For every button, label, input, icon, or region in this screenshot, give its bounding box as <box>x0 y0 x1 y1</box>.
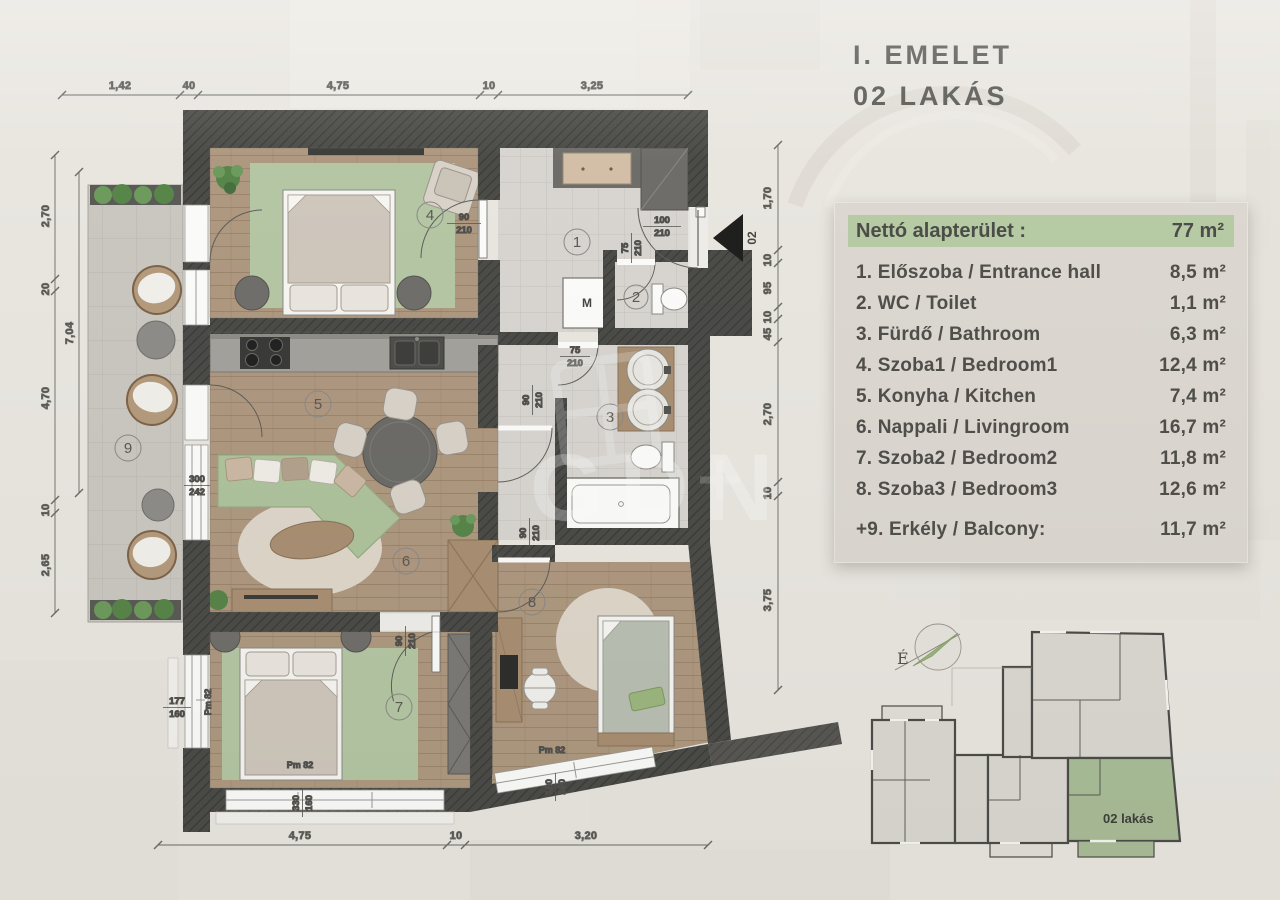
svg-text:3,20: 3,20 <box>575 830 598 842</box>
svg-text:2,65: 2,65 <box>40 554 52 577</box>
room-area: 11,7 m² <box>1142 519 1226 541</box>
door-bedroom1 <box>479 200 487 258</box>
minimap-unit <box>1032 632 1172 758</box>
dining-chair <box>434 420 469 457</box>
svg-text:10: 10 <box>762 311 774 324</box>
room-label: 8. Szoba3 / Bedroom3 <box>856 479 1057 501</box>
wall-top <box>183 110 708 148</box>
svg-text:90: 90 <box>521 395 532 406</box>
svg-text:2: 2 <box>632 289 640 306</box>
wall-bedroom2-bedroom3 <box>470 612 492 788</box>
page-title: I. EMELET 02 LAKÁS <box>853 42 1012 124</box>
svg-text:300: 300 <box>189 474 205 485</box>
minimap-core <box>1003 667 1032 757</box>
svg-text:330: 330 <box>291 795 302 811</box>
svg-text:10: 10 <box>450 830 463 842</box>
legend-row: 4. Szoba1 / Bedroom1 12,4 m² <box>848 350 1234 381</box>
balcony-table <box>137 321 175 359</box>
svg-text:6: 6 <box>402 553 410 570</box>
living-wardrobe <box>448 540 498 612</box>
svg-text:4,75: 4,75 <box>289 830 312 842</box>
window-tag: Pm 82 <box>539 745 566 755</box>
legend-header-value: 77 m² <box>1172 220 1224 243</box>
area-legend: Nettó alapterület : 77 m² 1. Előszoba / … <box>834 202 1248 563</box>
door-bedroom2-opening <box>380 614 438 630</box>
kitchen-sink-symbol <box>390 337 444 369</box>
minimap-unit <box>955 755 988 843</box>
title-unit: 02 LAKÁS <box>853 83 1012 110</box>
wall-wc <box>603 262 615 332</box>
room-label: 1. Előszoba / Entrance hall <box>856 262 1101 284</box>
balcony-table <box>142 489 174 521</box>
dim-left: 2,70 20 4,70 10 2,65 <box>40 151 59 617</box>
legend-row: 3. Fürdő / Bathroom 6,3 m² <box>848 319 1234 350</box>
svg-text:7,04: 7,04 <box>64 321 76 344</box>
window-tag: Pm 82 <box>287 760 314 770</box>
svg-text:160: 160 <box>557 779 568 795</box>
room-area: 12,6 m² <box>1142 479 1226 501</box>
room-label: 3. Fürdő / Bathroom <box>856 324 1040 346</box>
svg-text:210: 210 <box>456 225 472 236</box>
minimap: 02 lakás <box>872 632 1180 857</box>
svg-text:95: 95 <box>762 282 774 295</box>
bedroom1-furniture <box>213 148 482 315</box>
room-area: 6,3 m² <box>1142 324 1226 346</box>
kitchen-furniture <box>210 332 498 372</box>
legend-row: 2. WC / Toilet 1,1 m² <box>848 288 1234 319</box>
room-area: 7,4 m² <box>1142 386 1226 408</box>
svg-text:75: 75 <box>570 345 581 356</box>
shoe-bench <box>563 153 631 184</box>
svg-text:90: 90 <box>459 212 470 223</box>
svg-text:180: 180 <box>544 779 555 795</box>
svg-text:8: 8 <box>528 594 536 611</box>
svg-text:75: 75 <box>620 242 631 253</box>
svg-text:10: 10 <box>40 504 52 517</box>
north-arrow: É <box>895 624 961 670</box>
room-label: 6. Nappali / Livingroom <box>856 417 1070 439</box>
dining-table <box>363 415 437 489</box>
svg-text:4,70: 4,70 <box>40 387 52 410</box>
minimap-unit <box>872 720 955 843</box>
wall-bedroom1-kitchen <box>210 318 500 334</box>
svg-text:1,42: 1,42 <box>109 80 132 92</box>
room-label: +9. Erkély / Balcony: <box>856 519 1046 541</box>
hall-wardrobe <box>641 148 688 210</box>
svg-text:5: 5 <box>314 396 322 413</box>
svg-text:4: 4 <box>426 207 434 224</box>
svg-text:177: 177 <box>169 696 185 707</box>
laptop-symbol <box>500 655 518 689</box>
room-area: 8,5 m² <box>1142 262 1226 284</box>
svg-text:210: 210 <box>633 240 644 256</box>
svg-text:1,70: 1,70 <box>762 187 774 210</box>
legend-header: Nettó alapterület : 77 m² <box>848 215 1234 247</box>
svg-text:4,75: 4,75 <box>327 80 350 92</box>
svg-text:160: 160 <box>169 709 185 720</box>
svg-text:2,70: 2,70 <box>762 403 774 426</box>
dining-chair <box>382 386 419 421</box>
svg-text:90: 90 <box>518 528 529 539</box>
room-area: 16,7 m² <box>1142 417 1226 439</box>
washer-label: M <box>582 296 592 310</box>
room-label: 5. Konyha / Kitchen <box>856 386 1036 408</box>
minimap-bump-highlighted <box>1078 841 1154 857</box>
room-area: 12,4 m² <box>1142 355 1226 377</box>
minimap-unit-label: 02 lakás <box>1103 811 1154 826</box>
balcony-door-kitchen <box>185 385 208 440</box>
svg-text:3,25: 3,25 <box>581 80 604 92</box>
svg-text:90: 90 <box>394 636 405 647</box>
svg-text:10: 10 <box>483 80 496 92</box>
window-tag: Pm 82 <box>203 689 213 716</box>
svg-text:9: 9 <box>124 440 132 457</box>
legend-row: 8. Szoba3 / Bedroom3 12,6 m² <box>848 474 1234 505</box>
svg-text:1: 1 <box>573 234 581 251</box>
svg-text:210: 210 <box>654 228 670 239</box>
room-label: 4. Szoba1 / Bedroom1 <box>856 355 1057 377</box>
svg-text:242: 242 <box>189 487 205 498</box>
watermark-text: GDN <box>530 435 789 541</box>
room-area: 11,8 m² <box>1142 448 1226 470</box>
legend-row-balcony: +9. Erkély / Balcony: 11,7 m² <box>848 514 1234 545</box>
desk <box>496 618 522 722</box>
wall-living-bedroom2 <box>183 612 380 632</box>
svg-text:7: 7 <box>395 699 403 716</box>
room-area: 1,1 m² <box>1142 293 1226 315</box>
dim-right: 1,70 10 95 10 45 2,70 10 3,75 <box>762 141 782 694</box>
wall-corridor-left <box>478 345 498 428</box>
nightstand <box>397 276 431 310</box>
nightstand <box>235 276 269 310</box>
cooktop-symbol <box>240 337 290 369</box>
legend-header-label: Nettó alapterület : <box>856 220 1026 243</box>
room-label: 2. WC / Toilet <box>856 293 977 315</box>
legend-row: 7. Szoba2 / Bedroom2 11,8 m² <box>848 443 1234 474</box>
wall-right-top <box>688 148 708 207</box>
single-bed <box>598 616 674 746</box>
room-label: 7. Szoba2 / Bedroom2 <box>856 448 1057 470</box>
minimap-unit <box>988 755 1068 843</box>
legend-row: 6. Nappali / Livingroom 16,7 m² <box>848 412 1234 443</box>
svg-text:210: 210 <box>407 633 418 649</box>
svg-text:2,70: 2,70 <box>40 205 52 228</box>
tv-symbol <box>308 148 424 155</box>
toilet-bowl <box>661 288 687 310</box>
svg-text:40: 40 <box>183 80 196 92</box>
legend-row: 1. Előszoba / Entrance hall 8,5 m² <box>848 257 1234 288</box>
svg-text:210: 210 <box>534 392 545 408</box>
dim-left-inner: 7,04 <box>64 168 83 497</box>
svg-text:10: 10 <box>762 254 774 267</box>
floorplan-sheet: { "title": { "line1": "I. EMELET", "line… <box>0 0 1280 900</box>
double-bed <box>283 190 395 315</box>
legend-row: 5. Konyha / Kitchen 7,4 m² <box>848 381 1234 412</box>
svg-text:45: 45 <box>762 328 774 341</box>
balcony-door-bedroom1 <box>185 205 208 262</box>
minimap-unit-highlighted <box>1068 758 1180 841</box>
svg-text:3,75: 3,75 <box>762 589 774 612</box>
svg-text:20: 20 <box>40 283 52 296</box>
svg-text:160: 160 <box>304 795 315 811</box>
svg-text:100: 100 <box>654 215 670 226</box>
north-label: É <box>897 648 909 668</box>
entry-marker-label: 02 <box>745 231 759 245</box>
title-floor: I. EMELET <box>853 42 1012 69</box>
